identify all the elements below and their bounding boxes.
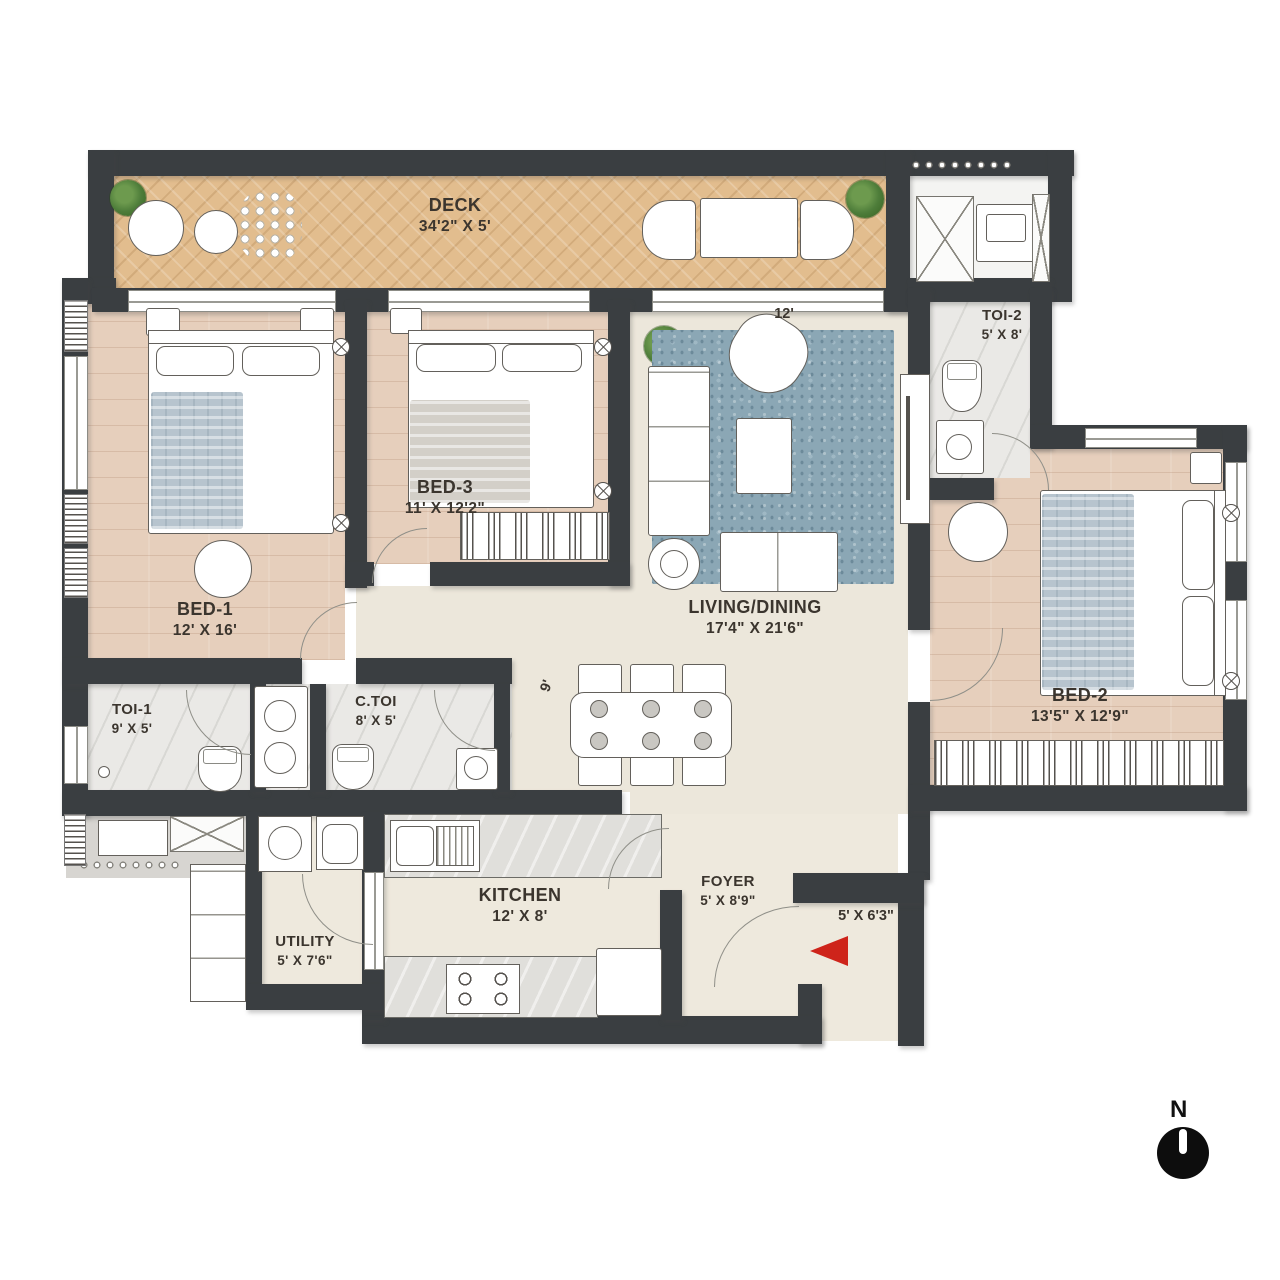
room-name: BED-1 xyxy=(120,598,290,621)
floor-drain xyxy=(98,766,110,778)
wall xyxy=(793,873,924,903)
ac-unit xyxy=(98,820,168,856)
compass-north-label: N xyxy=(1170,1096,1187,1124)
sink-drainer xyxy=(436,826,474,866)
room-dims: 11' X 12'2" xyxy=(355,499,535,519)
room-label-deck: DECK 34'2" X 5' xyxy=(360,194,550,238)
deck-lounge-chair xyxy=(642,200,696,260)
room-dims: 5' X 8'9" xyxy=(668,892,788,910)
cross-circle-icon xyxy=(1222,504,1240,522)
room-dims: 13'5" X 12'9" xyxy=(980,707,1180,727)
railing-dots xyxy=(910,158,1016,172)
basin-bowl xyxy=(946,434,972,460)
place-setting xyxy=(642,700,660,718)
cross-circle-icon xyxy=(332,514,350,532)
wall xyxy=(1048,150,1072,302)
wall xyxy=(886,150,910,312)
window xyxy=(64,356,88,490)
cross-circle-icon xyxy=(594,338,612,356)
wall xyxy=(88,150,114,296)
room-label-toi1: TOI-1 9' X 5' xyxy=(84,700,180,737)
room-name: C.TOI xyxy=(330,692,422,712)
wall xyxy=(356,658,512,684)
room-name: UTILITY xyxy=(250,932,360,952)
place-setting xyxy=(642,732,660,750)
room-name: TOI-2 xyxy=(952,306,1052,326)
floor-plan-canvas: DECK 34'2" X 5' BED-1 12' X 16' BED-3 11… xyxy=(0,0,1280,1280)
room-label-bed1: BED-1 12' X 16' xyxy=(120,598,290,642)
basin-bowl xyxy=(264,742,296,774)
room-name: BED-3 xyxy=(355,476,535,499)
headboard xyxy=(1214,490,1226,696)
sofa-three-seat xyxy=(648,366,710,536)
sink-bowl xyxy=(396,826,434,866)
room-name: BED-2 xyxy=(980,684,1180,707)
wall xyxy=(310,684,326,792)
tv-icon xyxy=(906,396,910,500)
room-name: KITCHEN xyxy=(430,884,610,907)
fridge-icon xyxy=(596,948,662,1016)
place-setting xyxy=(694,700,712,718)
room-dims: 9' X 5' xyxy=(84,720,180,738)
room-name: TOI-1 xyxy=(84,700,180,720)
planter-flowers xyxy=(238,190,302,262)
shaft-cross-icon xyxy=(916,196,974,282)
nightstand xyxy=(1190,452,1222,484)
wall xyxy=(430,562,630,586)
room-label-living: LIVING/DINING 17'4" X 21'6" xyxy=(640,596,870,640)
armchair xyxy=(194,540,252,598)
wardrobe-louver xyxy=(64,548,88,598)
cross-circle-icon xyxy=(1222,672,1240,690)
dining-chair xyxy=(682,754,726,786)
utility-sink-bowl xyxy=(322,824,358,864)
pillow xyxy=(502,344,582,372)
room-name: DECK xyxy=(360,194,550,217)
pillow xyxy=(1182,596,1214,686)
room-dims: 34'2" X 5' xyxy=(360,217,550,237)
cross-circle-icon xyxy=(332,338,350,356)
tall-cabinet xyxy=(190,864,246,1002)
wall xyxy=(62,790,622,816)
room-dims: 17'4" X 21'6" xyxy=(640,619,870,639)
room-label-ctoi: C.TOI 8' X 5' xyxy=(330,692,422,729)
basin-bowl xyxy=(264,700,296,732)
deck-table xyxy=(700,198,798,258)
place-setting xyxy=(590,732,608,750)
headboard xyxy=(148,330,334,344)
cross-circle-icon xyxy=(594,482,612,500)
room-dims: 5' X 8' xyxy=(952,326,1052,344)
pillow xyxy=(156,346,234,376)
wc-icon xyxy=(942,360,982,412)
place-setting xyxy=(694,732,712,750)
shaft-cross-icon xyxy=(170,816,244,852)
pillow xyxy=(416,344,496,372)
deck-chair xyxy=(194,210,238,254)
pillow xyxy=(1182,500,1214,590)
wardrobe xyxy=(934,740,1224,786)
headboard xyxy=(408,330,594,344)
blanket xyxy=(1042,494,1134,690)
louver xyxy=(64,814,86,866)
room-label-bed2: BED-2 13'5" X 12'9" xyxy=(980,684,1180,728)
side-table-inner xyxy=(660,550,688,578)
entry-arrow-icon xyxy=(810,936,848,966)
room-label-utility: UTILITY 5' X 7'6" xyxy=(250,932,360,969)
railing-dots xyxy=(78,858,182,872)
place-setting xyxy=(590,700,608,718)
room-name: FOYER xyxy=(668,872,788,892)
shaft-cross-icon xyxy=(1032,194,1050,282)
pillow xyxy=(242,346,320,376)
wc-icon xyxy=(332,744,374,790)
room-dims: 5' X 7'6" xyxy=(250,952,360,970)
hob-icon xyxy=(446,964,520,1014)
room-dims: 12' X 16' xyxy=(120,621,290,641)
wall xyxy=(345,562,374,586)
dining-chair xyxy=(578,754,622,786)
room-label-kitchen: KITCHEN 12' X 8' xyxy=(430,884,610,928)
wardrobe-louver xyxy=(64,494,88,544)
coffee-table xyxy=(736,418,792,494)
wall xyxy=(62,658,302,684)
lift-car xyxy=(986,214,1026,242)
blanket xyxy=(151,392,243,529)
wall xyxy=(908,785,1247,811)
wall xyxy=(246,984,386,1010)
wall xyxy=(660,890,682,1020)
deck-lounge-chair xyxy=(800,200,854,260)
basin-bowl xyxy=(464,756,488,780)
compass-needle-icon xyxy=(1179,1129,1187,1154)
plant-icon xyxy=(846,180,884,218)
entrance-dims-label: 5' X 6'3" xyxy=(818,908,914,924)
wall xyxy=(930,478,994,500)
room-dims: 12' X 8' xyxy=(430,907,610,927)
room-label-bed3: BED-3 11' X 12'2" xyxy=(355,476,535,520)
washer-drum xyxy=(268,826,302,860)
armchair xyxy=(948,502,1008,562)
room-label-toi2: TOI-2 5' X 8' xyxy=(952,306,1052,343)
room-label-foyer: FOYER 5' X 8'9" xyxy=(668,872,788,909)
living-width-label: 12' xyxy=(760,306,808,322)
tv-unit xyxy=(900,374,930,524)
dining-chair xyxy=(630,754,674,786)
deck-chair xyxy=(128,200,184,256)
room-name: LIVING/DINING xyxy=(640,596,870,619)
room-dims: 8' X 5' xyxy=(330,712,422,730)
sofa-two-seat xyxy=(720,532,838,592)
wardrobe-louver xyxy=(64,300,88,352)
wall xyxy=(362,1016,822,1044)
window xyxy=(1085,428,1197,448)
